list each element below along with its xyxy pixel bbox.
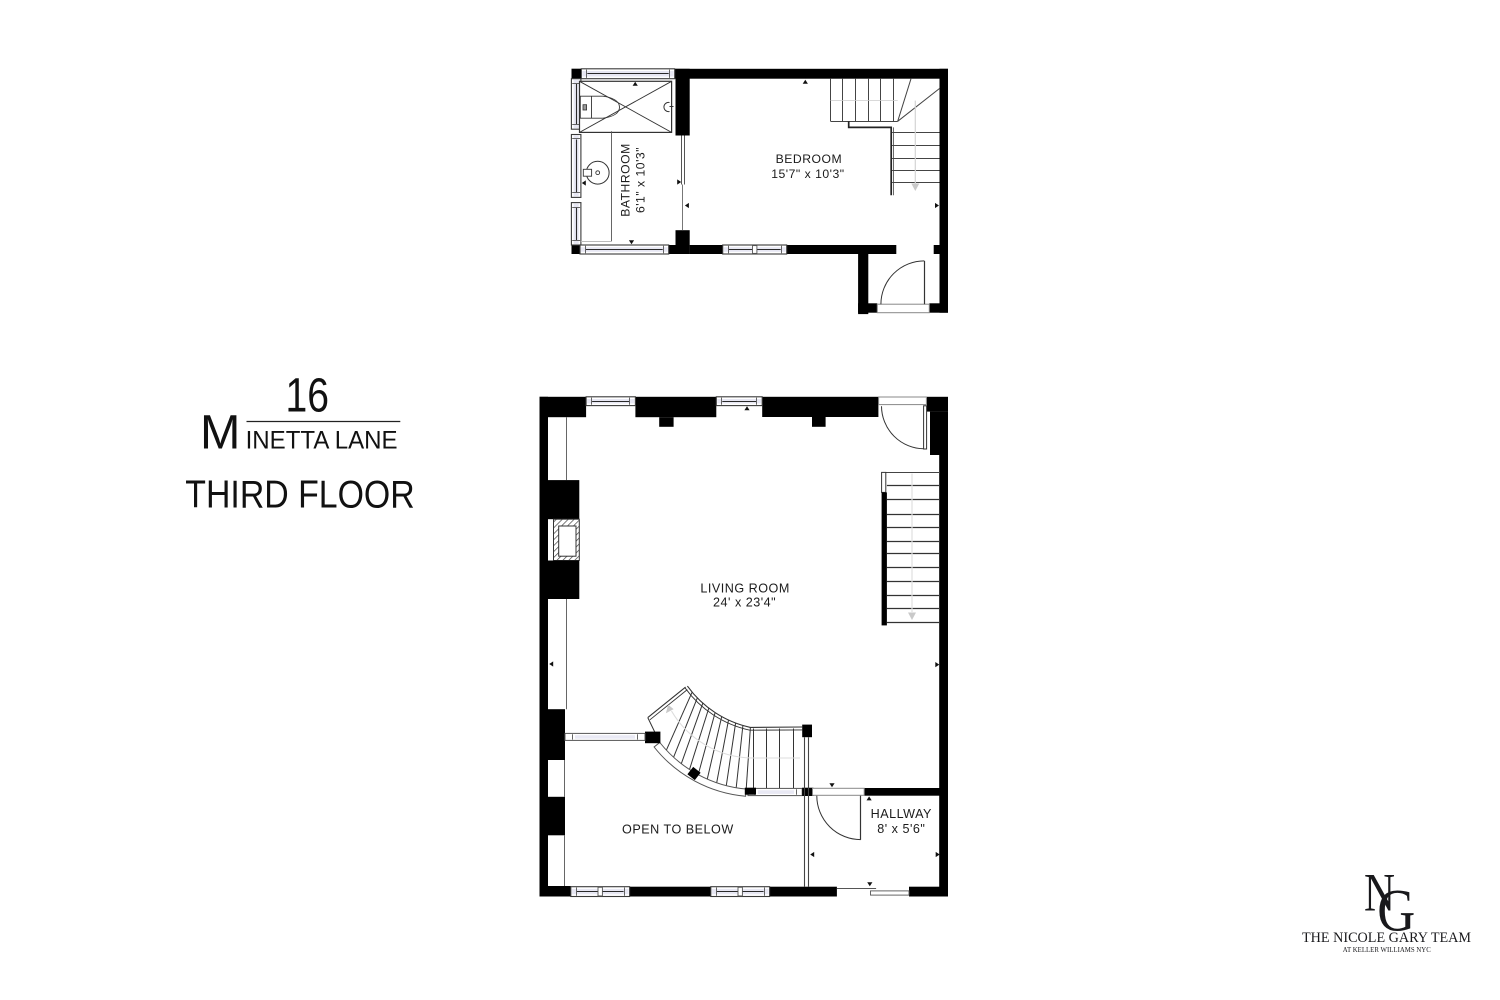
svg-text:THE NICOLE GARY TEAM: THE NICOLE GARY TEAM	[1302, 930, 1471, 946]
svg-text:24' x 23'4": 24' x 23'4"	[713, 595, 776, 609]
svg-text:6'1" x 10'3": 6'1" x 10'3"	[634, 147, 648, 213]
svg-text:HALLWAY: HALLWAY	[871, 807, 932, 821]
svg-text:BEDROOM: BEDROOM	[776, 152, 842, 166]
svg-text:LIVING ROOM: LIVING ROOM	[700, 581, 789, 595]
svg-text:15'7" x 10'3": 15'7" x 10'3"	[771, 167, 844, 181]
svg-text:THIRD FLOOR: THIRD FLOOR	[185, 474, 414, 517]
svg-text:8' x 5'6": 8' x 5'6"	[877, 822, 925, 836]
svg-text:OPEN TO BELOW: OPEN TO BELOW	[622, 822, 734, 836]
svg-text:BATHROOM: BATHROOM	[619, 143, 633, 217]
svg-text:AT KELLER WILLIAMS NYC: AT KELLER WILLIAMS NYC	[1343, 945, 1431, 954]
svg-text:INETTA LANE: INETTA LANE	[246, 426, 398, 454]
svg-text:M: M	[200, 405, 240, 459]
svg-text:16: 16	[286, 369, 330, 422]
